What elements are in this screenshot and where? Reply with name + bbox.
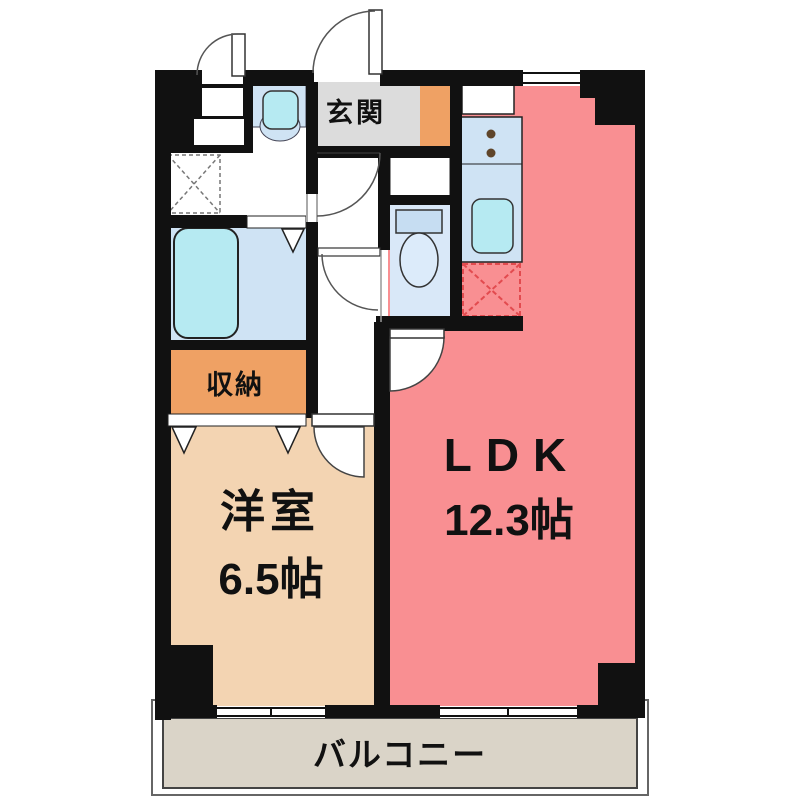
stove-burner-icon [487, 130, 496, 139]
wall-top [380, 70, 452, 86]
wall-bathroom-storage [155, 340, 313, 350]
washbasin-icon [263, 91, 298, 129]
storage-label: 収納 [206, 369, 264, 400]
wall-washroom-bathroom [155, 215, 247, 228]
window-top [523, 71, 580, 85]
floor-plan: 玄関 収納 洋室 6.5帖 LDK 12.3帖 バルコニー [0, 0, 799, 800]
wall-corridor-left-upper [306, 82, 318, 194]
washroom-doorway [306, 194, 318, 222]
kitchen-sink-icon [472, 199, 513, 253]
western-room-size: 6.5帖 [218, 555, 323, 604]
window-western-room [217, 706, 325, 718]
storage-door-threshold [168, 414, 306, 426]
wall-room-divider [374, 322, 390, 712]
bathroom-door-threshold [247, 216, 306, 228]
meterbox-slot [194, 119, 244, 145]
wall-bottom [577, 705, 645, 718]
wall-top [452, 70, 523, 86]
ldk-size: 12.3帖 [444, 496, 574, 545]
entrance-step [420, 82, 450, 148]
balcony-label: バルコニー [313, 736, 487, 773]
ldk-label: LDK [444, 429, 581, 481]
meterbox-slot [202, 88, 243, 116]
floor-plan-canvas: 玄関 収納 洋室 6.5帖 LDK 12.3帖 バルコニー [0, 0, 799, 800]
wall-bottom [155, 705, 217, 718]
bathtub-icon [174, 228, 238, 338]
wall-top [243, 70, 314, 86]
wall-corridor-left-lower [306, 222, 318, 418]
kitchen-top-unit [462, 84, 514, 114]
wall-left [155, 70, 171, 720]
wall-shoebox-bottom [388, 195, 452, 205]
shoe-cabinet [390, 156, 450, 196]
toilet-bowl-icon [400, 233, 438, 287]
toilet-tank-icon [396, 210, 442, 233]
pillar-top-right [580, 70, 645, 98]
western-room-label: 洋室 [220, 486, 320, 537]
pillar-top-right-step [595, 98, 645, 125]
window-ldk [440, 706, 577, 718]
entrance-label: 玄関 [326, 97, 386, 128]
wall-right [635, 125, 645, 718]
stove-burner-icon [487, 149, 496, 158]
